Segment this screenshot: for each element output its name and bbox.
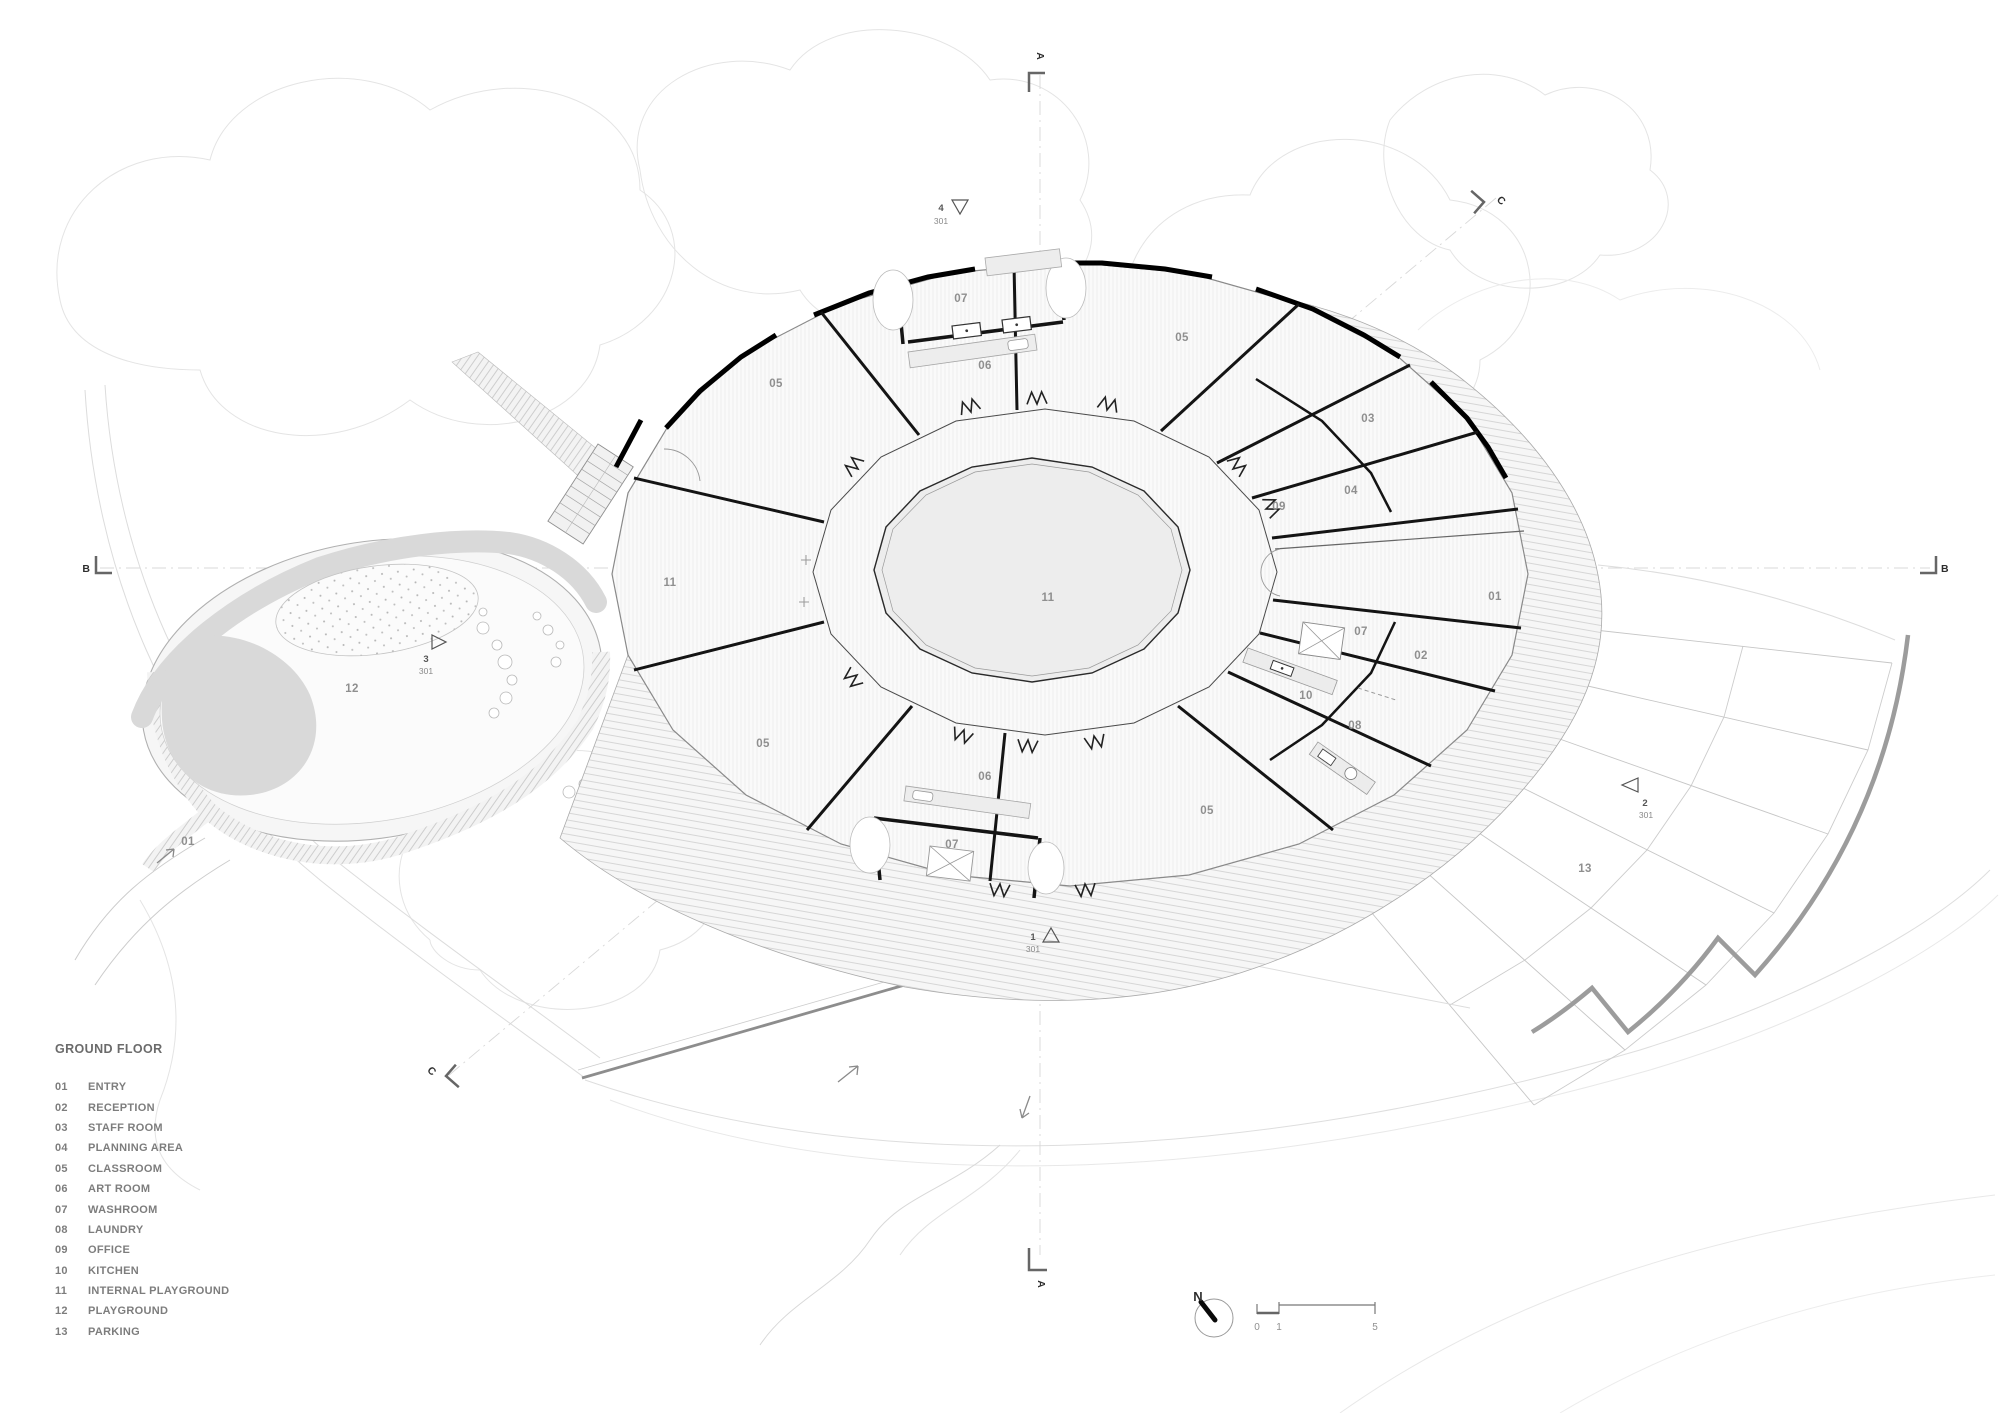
legend-item-laundry: 08LAUNDRY xyxy=(55,1220,229,1240)
washroom-east-table xyxy=(1299,622,1345,660)
room-label-internal-playground-west: 11 xyxy=(664,577,677,589)
legend-num: 02 xyxy=(55,1102,88,1114)
legend-item-staff-room: 03STAFF ROOM xyxy=(55,1118,229,1138)
detail-1-num: 1 xyxy=(1030,932,1036,943)
legend-item-internal-playground: 11INTERNAL PLAYGROUND xyxy=(55,1281,229,1301)
legend-num: 09 xyxy=(55,1244,88,1256)
legend-name: RECEPTION xyxy=(88,1102,155,1114)
legend-num: 13 xyxy=(55,1326,88,1338)
legend-num: 06 xyxy=(55,1183,88,1195)
legend-name: PLAYGROUND xyxy=(88,1305,168,1317)
legend-item-planning-area: 04PLANNING AREA xyxy=(55,1138,229,1158)
detail-2-num: 2 xyxy=(1642,798,1647,809)
legend-num: 05 xyxy=(55,1163,88,1175)
room-label-entry-path: 01 xyxy=(181,836,195,848)
legend-num: 03 xyxy=(55,1122,88,1134)
legend-item-entry: 01ENTRY xyxy=(55,1077,229,1097)
room-label-playground: 12 xyxy=(345,683,359,695)
room-label-kitchen: 10 xyxy=(1299,690,1313,702)
room-label-classroom-top-left: 05 xyxy=(769,378,783,390)
legend-name: OFFICE xyxy=(88,1244,130,1256)
detail-3-num: 3 xyxy=(423,654,428,665)
room-label-artroom-top: 06 xyxy=(978,360,992,372)
room-label-reception: 02 xyxy=(1414,650,1428,662)
room-label-entry-east: 01 xyxy=(1488,591,1502,603)
room-label-classroom-top-right: 05 xyxy=(1175,332,1189,344)
legend-name: WASHROOM xyxy=(88,1204,158,1216)
legend-num: 04 xyxy=(55,1142,88,1154)
legend-num: 12 xyxy=(55,1305,88,1317)
legend-name: KITCHEN xyxy=(88,1265,139,1277)
legend-item-kitchen: 10KITCHEN xyxy=(55,1261,229,1281)
legend-item-classroom: 05CLASSROOM xyxy=(55,1159,229,1179)
legend-item-reception: 02RECEPTION xyxy=(55,1097,229,1117)
room-label-classroom-bottom-left: 05 xyxy=(756,738,770,750)
section-b-left-label: B xyxy=(82,563,90,575)
legend-item-art-room: 06ART ROOM xyxy=(55,1179,229,1199)
legend-num: 07 xyxy=(55,1204,88,1216)
detail-4-num: 4 xyxy=(938,203,944,214)
room-label-staff-room: 03 xyxy=(1361,413,1375,425)
room-label-parking: 13 xyxy=(1578,863,1592,875)
legend-item-playground: 12PLAYGROUND xyxy=(55,1301,229,1321)
legend-num: 08 xyxy=(55,1224,88,1236)
floor-plan-canvas: 05 05 07 06 03 04 09 11 11 01 07 02 10 0… xyxy=(0,0,2000,1413)
legend-name: STAFF ROOM xyxy=(88,1122,163,1134)
detail-2-sheet: 301 xyxy=(1639,810,1653,820)
north-label: N xyxy=(1193,1289,1202,1304)
legend-num: 01 xyxy=(55,1081,88,1093)
room-label-internal-playground-center: 11 xyxy=(1042,592,1055,604)
room-label-classroom-bottom-right: 05 xyxy=(1200,805,1214,817)
legend-name: CLASSROOM xyxy=(88,1163,162,1175)
legend-name: PLANNING AREA xyxy=(88,1142,183,1154)
room-label-planning-area: 04 xyxy=(1344,485,1358,497)
legend: GROUND FLOOR 01ENTRY 02RECEPTION 03STAFF… xyxy=(55,1042,229,1342)
room-label-washroom-bottom: 07 xyxy=(945,839,959,851)
room-label-artroom-bottom: 06 xyxy=(978,771,992,783)
room-label-office: 09 xyxy=(1272,501,1286,513)
room-label-laundry: 08 xyxy=(1348,720,1362,732)
legend-item-office: 09OFFICE xyxy=(55,1240,229,1260)
detail-3-sheet: 301 xyxy=(419,666,433,676)
legend-name: PARKING xyxy=(88,1326,140,1338)
room-label-washroom-top: 07 xyxy=(954,293,968,305)
legend-title: GROUND FLOOR xyxy=(55,1042,229,1056)
legend-name: ENTRY xyxy=(88,1081,126,1093)
legend-num: 11 xyxy=(55,1285,88,1297)
legend-rows: 01ENTRY 02RECEPTION 03STAFF ROOM 04PLANN… xyxy=(55,1077,229,1342)
detail-1-sheet: 301 xyxy=(1026,944,1040,954)
legend-item-parking: 13PARKING xyxy=(55,1322,229,1342)
legend-item-washroom: 07WASHROOM xyxy=(55,1199,229,1219)
legend-name: LAUNDRY xyxy=(88,1224,143,1236)
detail-4-sheet: 301 xyxy=(934,216,948,226)
section-b-right-label: B xyxy=(1941,563,1949,575)
room-label-washroom-east: 07 xyxy=(1354,626,1368,638)
legend-name: ART ROOM xyxy=(88,1183,150,1195)
section-a-bottom-label: A xyxy=(1035,1280,1047,1288)
legend-num: 10 xyxy=(55,1265,88,1277)
section-a-top-label: A xyxy=(1034,52,1046,60)
scale-tick-5: 5 xyxy=(1372,1322,1378,1333)
legend-name: INTERNAL PLAYGROUND xyxy=(88,1285,229,1297)
scale-tick-1: 1 xyxy=(1276,1322,1282,1333)
courtyard xyxy=(874,458,1190,682)
scale-tick-0: 0 xyxy=(1254,1322,1260,1333)
